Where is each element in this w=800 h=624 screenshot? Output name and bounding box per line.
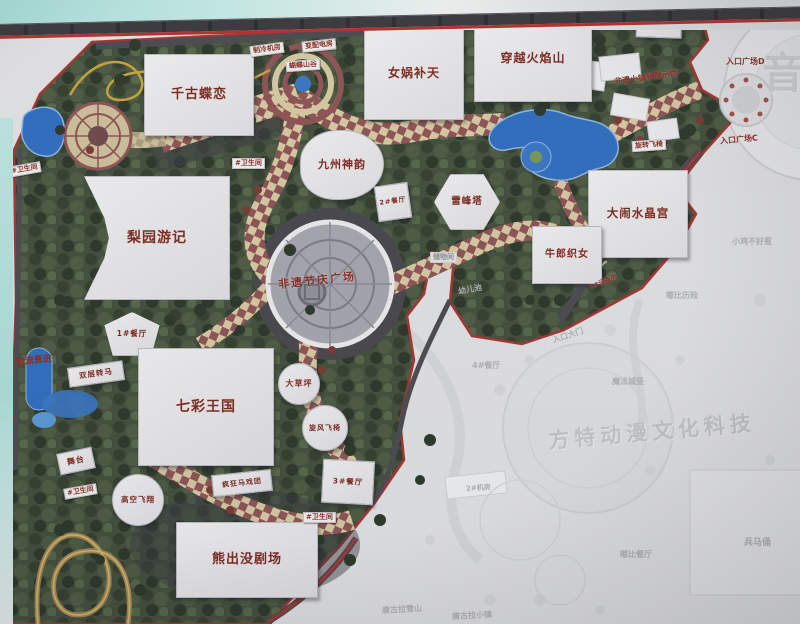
theme-park-map-photo: 千古蝶恋女娲补天穿越火焰山总仓九州神韵雷峰塔2#餐厅大闹水晶宫牛郎织女梨园游记1… — [0, 0, 800, 624]
photo-vignette-overlay — [0, 0, 800, 624]
